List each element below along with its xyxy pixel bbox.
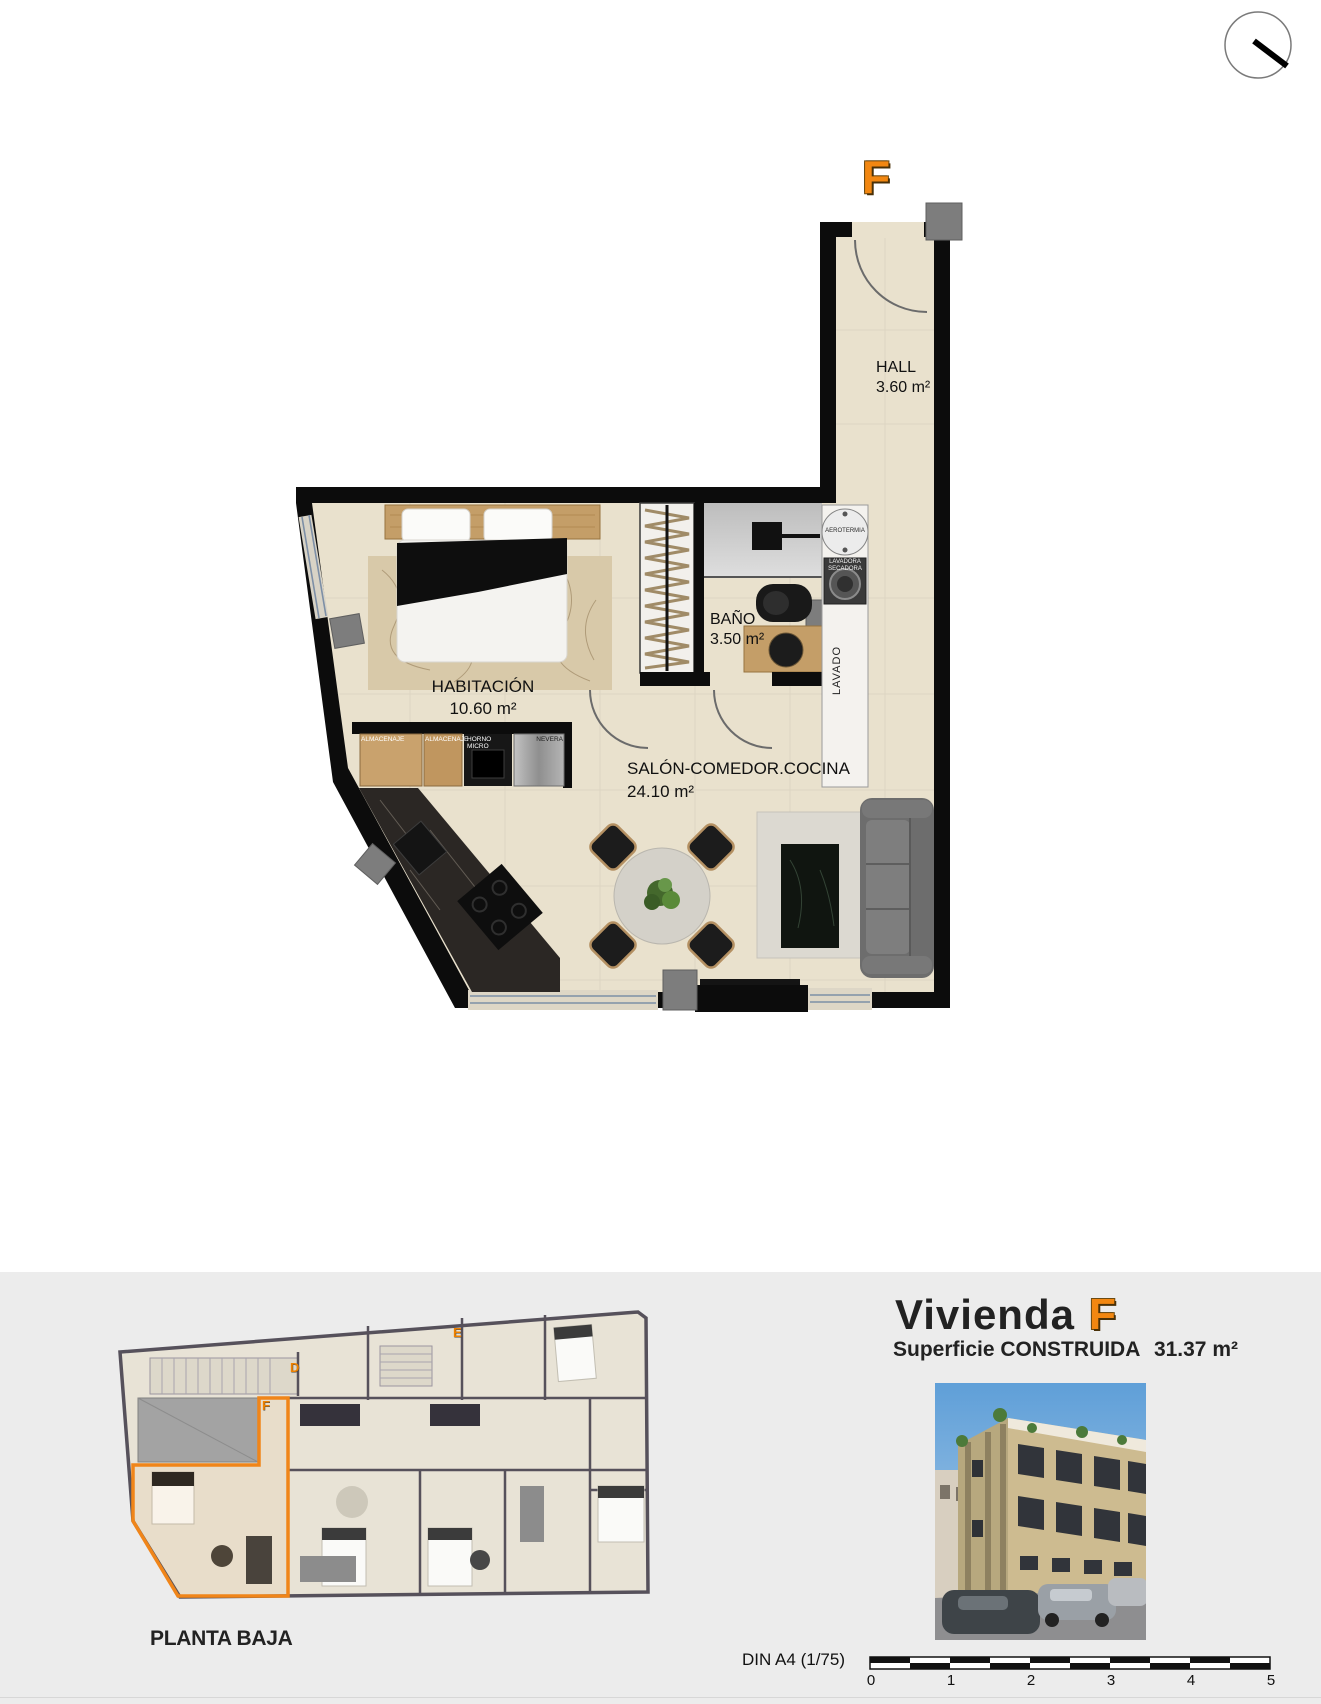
window-bottom-left	[468, 990, 658, 1010]
oven-line2: MICRO	[467, 743, 513, 750]
room-label-hall: HALL 3.60 m²	[876, 358, 930, 398]
surface-value: 31.37 m²	[1154, 1338, 1238, 1362]
room-name: HALL	[876, 358, 930, 378]
washer-line1: LAVADORA	[822, 559, 868, 566]
coffee-table	[781, 844, 839, 948]
room-area: 24.10 m²	[627, 781, 850, 804]
plan-sheet: F HALL 3.60 m² BAÑO 3.50 m² HABITACIÓN 1…	[0, 0, 1321, 1704]
room-name: SALÓN-COMEDOR.COCINA	[627, 758, 850, 781]
aerotermia-label: AEROTERMIA	[812, 528, 878, 534]
room-label-habitacion: HABITACIÓN 10.60 m²	[408, 676, 558, 720]
surface-row: Superficie CONSTRUIDA 31.37 m²	[893, 1338, 1238, 1362]
site-letter-d: D	[290, 1360, 299, 1375]
scale-bar	[870, 1657, 1270, 1669]
pillow	[484, 509, 552, 542]
plan-graphics	[0, 0, 1321, 1704]
unit-title-word: Vivienda	[895, 1291, 1075, 1339]
scale-label: DIN A4 (1/75)	[742, 1650, 845, 1670]
floor-plan	[296, 203, 962, 1012]
tv-bench	[700, 979, 800, 985]
scale-tick-1: 1	[942, 1672, 960, 1689]
room-name: HABITACIÓN	[408, 676, 558, 698]
scale-tick-3: 3	[1102, 1672, 1120, 1689]
site-plan	[120, 1312, 648, 1597]
main-building	[958, 1418, 1146, 1600]
scale-tick-4: 4	[1182, 1672, 1200, 1689]
room-area: 3.60 m²	[876, 378, 930, 398]
unit-title-letter: F	[1089, 1290, 1116, 1340]
room-label-bano: BAÑO 3.50 m²	[710, 610, 764, 650]
scale-tick-2: 2	[1022, 1672, 1040, 1689]
washer-dryer-label: LAVADORA SECADORA	[822, 559, 868, 572]
scale-tick-0: 0	[862, 1672, 880, 1689]
sofa	[860, 798, 934, 978]
room-name: BAÑO	[710, 610, 764, 630]
site-plan-caption: PLANTA BAJA	[150, 1627, 293, 1651]
site-letter-e: E	[453, 1325, 462, 1340]
oven-line1: HORNO	[467, 736, 513, 743]
fridge-label: NEVERA	[515, 736, 563, 743]
unit-title: Vivienda F	[895, 1290, 1116, 1340]
building-photo	[935, 1383, 1148, 1640]
room-area: 10.60 m²	[408, 698, 558, 720]
shower-head-icon	[752, 522, 782, 550]
room-area: 3.50 m²	[710, 630, 764, 650]
wardrobe	[640, 503, 694, 673]
scale-tick-5: 5	[1262, 1672, 1280, 1689]
bed	[368, 505, 612, 690]
surface-label: Superficie CONSTRUIDA	[893, 1338, 1140, 1362]
window-bottom-right	[808, 988, 872, 1010]
cabinet-label-2: ALMACENAJE	[425, 736, 462, 743]
entrance-opening	[852, 222, 924, 238]
wall-section-bottom	[695, 985, 808, 1012]
cabinet-label-1: ALMACENAJE	[361, 736, 421, 743]
basin-sink	[769, 633, 803, 667]
north-compass-icon	[1225, 12, 1291, 78]
unit-letter-label: F	[862, 150, 890, 204]
lavado-label: LAVADO	[831, 625, 853, 717]
washer-line2: SECADORA	[822, 566, 868, 573]
patio-shaft	[138, 1398, 258, 1462]
site-letter-f: F	[262, 1398, 270, 1413]
room-label-salon: SALÓN-COMEDOR.COCINA 24.10 m²	[627, 758, 850, 804]
oven-label: HORNO MICRO	[467, 736, 513, 751]
pillow	[402, 509, 470, 542]
